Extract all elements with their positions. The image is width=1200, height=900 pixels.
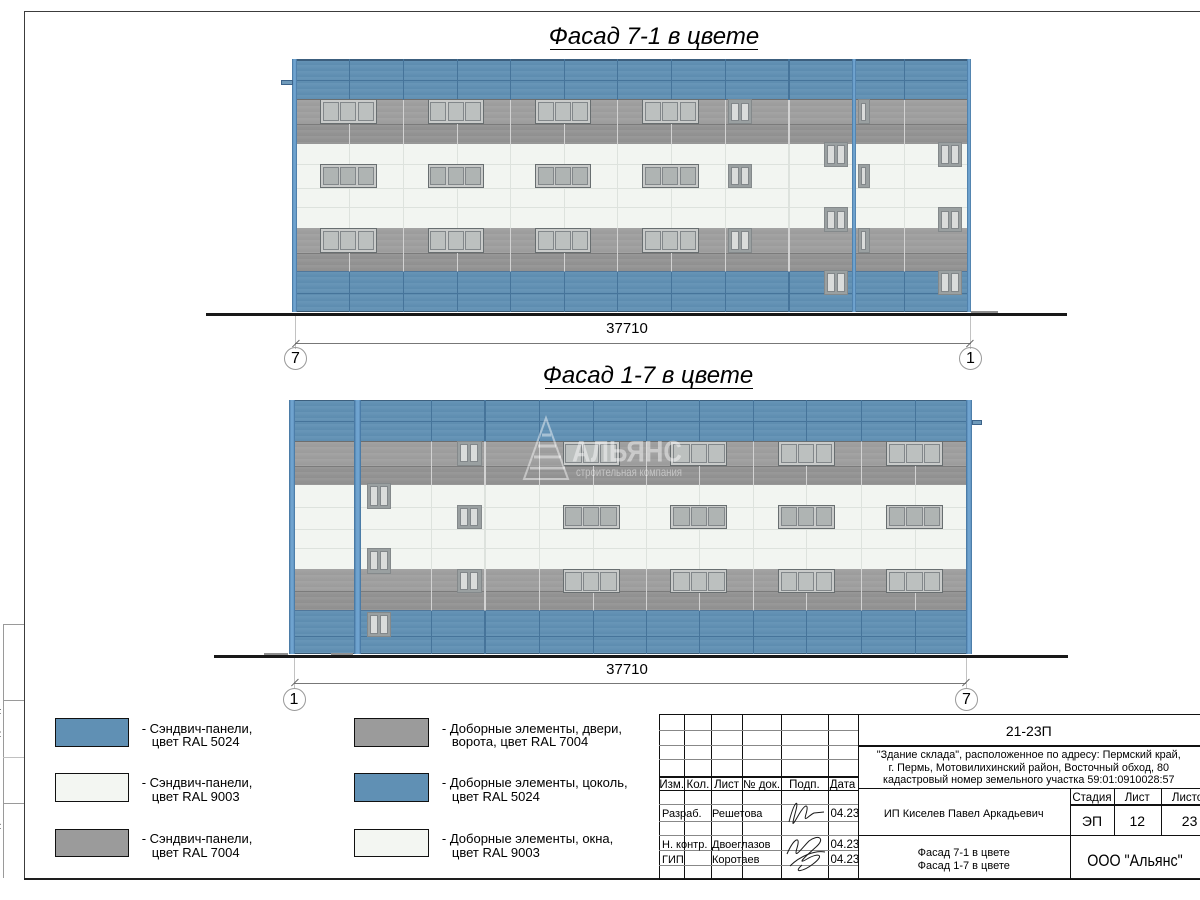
svg-text:АЛЬЯНС: АЛЬЯНС [572, 436, 682, 469]
svg-text:строительная компания: строительная компания [576, 465, 682, 479]
